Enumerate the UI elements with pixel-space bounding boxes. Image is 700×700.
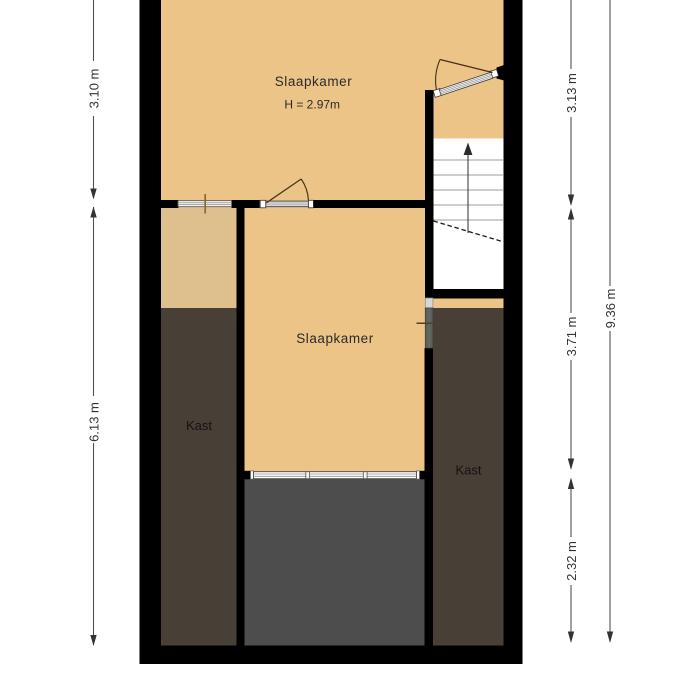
svg-text:Slaapkamer: Slaapkamer	[296, 331, 374, 346]
svg-text:6.13 m: 6.13 m	[87, 402, 102, 442]
svg-text:9.36 m: 9.36 m	[603, 289, 618, 329]
svg-text:Kast: Kast	[186, 418, 212, 433]
svg-text:H = 2.97m: H = 2.97m	[284, 98, 340, 112]
svg-text:Kast: Kast	[455, 463, 481, 478]
svg-text:3.13 m: 3.13 m	[564, 73, 579, 113]
svg-text:Slaapkamer: Slaapkamer	[275, 74, 353, 89]
svg-text:3.71 m: 3.71 m	[564, 317, 579, 357]
svg-text:2.32 m: 2.32 m	[564, 541, 579, 581]
svg-text:3.10 m: 3.10 m	[87, 69, 102, 109]
